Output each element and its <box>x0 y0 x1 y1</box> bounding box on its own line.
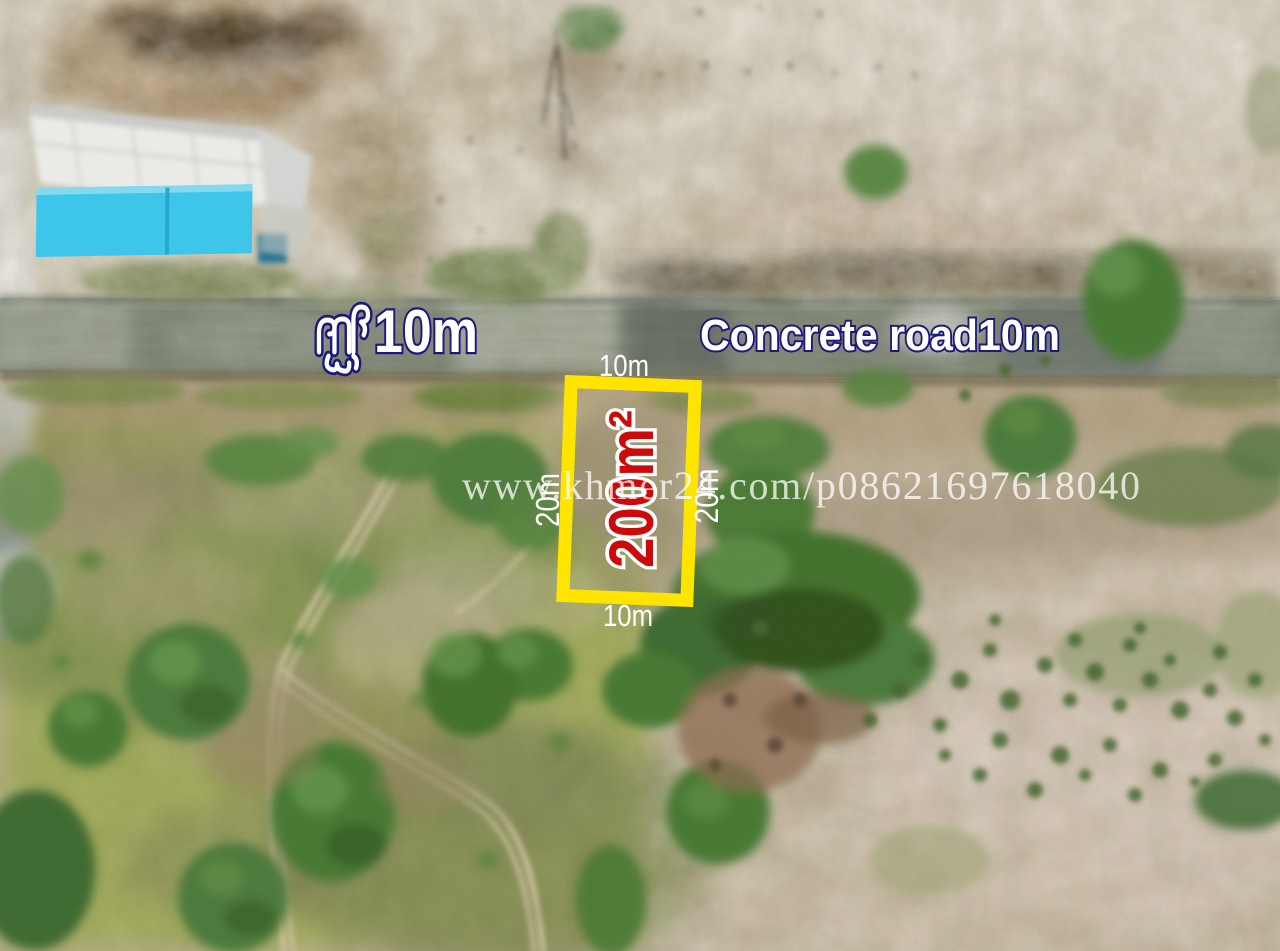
svg-text:Concrete road10m: Concrete road10m <box>700 311 1060 360</box>
svg-text:10m: 10m <box>374 298 478 365</box>
svg-text:10m: 10m <box>599 348 649 383</box>
svg-text:10m: 10m <box>603 598 653 633</box>
svg-text:www.khmer24.com/p0862169761804: www.khmer24.com/p08621697618040 <box>462 463 1140 508</box>
